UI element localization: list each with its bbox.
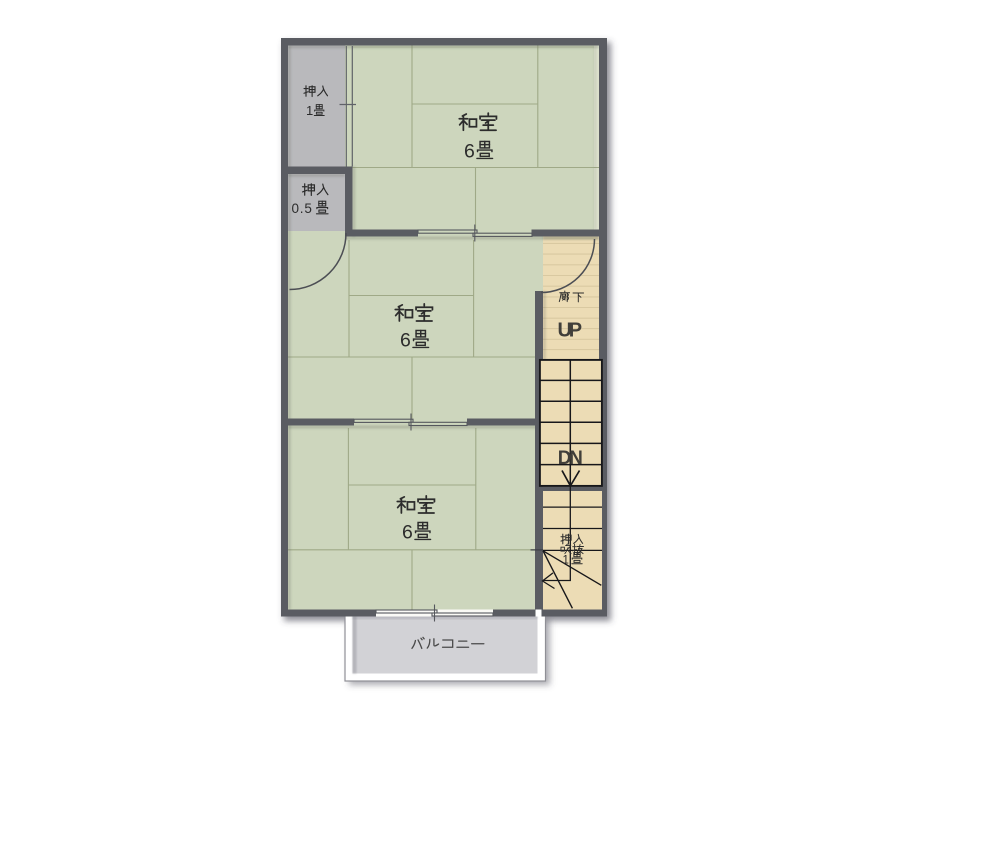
svg-text:UP: UP [558, 320, 583, 342]
svg-text:0.5: 0.5 [292, 201, 313, 216]
svg-text:DN: DN [558, 448, 583, 469]
svg-text:6: 6 [402, 522, 413, 544]
svg-text:6: 6 [400, 330, 411, 352]
svg-text:1: 1 [306, 103, 313, 118]
svg-text:6: 6 [464, 141, 475, 163]
svg-text:1: 1 [563, 555, 569, 567]
